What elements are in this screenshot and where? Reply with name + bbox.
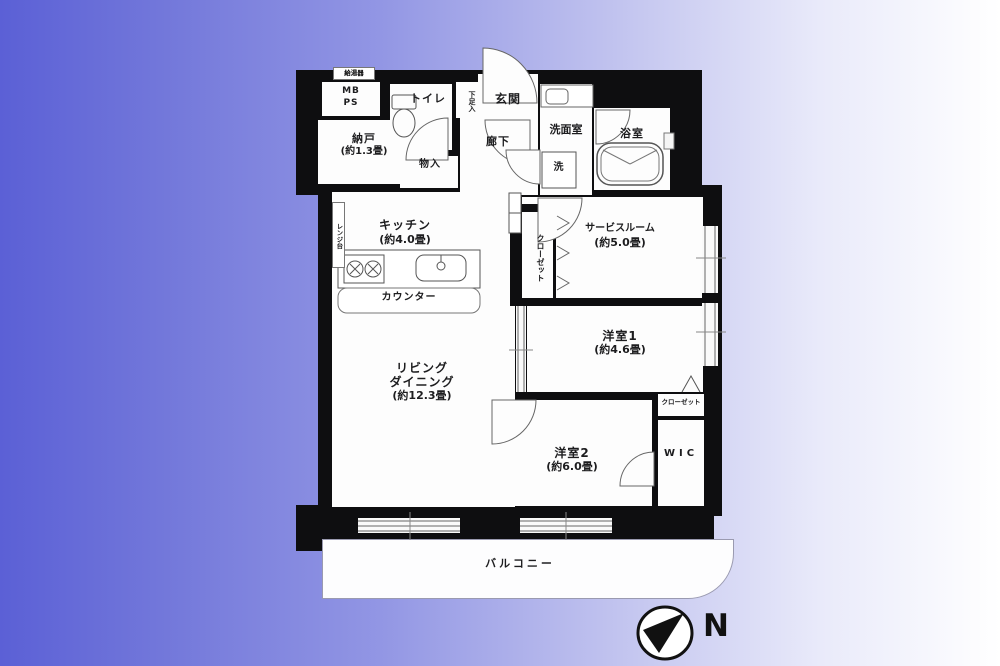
- range-stand-label: レンジ台: [335, 207, 342, 265]
- wall-closet-side: [553, 212, 556, 298]
- ps-label: PS: [322, 99, 380, 108]
- mb-label: MB: [322, 87, 380, 96]
- wic-label: WIC: [656, 449, 706, 460]
- floorplan-scene: 給湯器 MB PS 納戸 (約1.3畳) トイレ 下足入 玄関 廊下 物入 洗面…: [0, 0, 1000, 666]
- room-kitchen: [332, 192, 510, 306]
- room-wic: [658, 420, 704, 506]
- closet-w1-label: クローゼット: [658, 399, 704, 406]
- room-washroom: [540, 84, 592, 195]
- closet-service-label: クローゼット: [530, 219, 544, 297]
- western1-label: 洋室1: [560, 330, 680, 343]
- water-heater-label: 給湯器: [333, 67, 375, 80]
- living-size: (約12.3畳): [355, 390, 489, 402]
- hallway-label: 廊下: [470, 136, 526, 148]
- kitchen-size: (約4.0畳): [340, 234, 470, 246]
- living-label-2: ダイニング: [360, 376, 484, 389]
- room-bathroom: [594, 108, 670, 190]
- service-room-size: (約5.0畳): [560, 237, 680, 249]
- room-living-dining: [332, 306, 515, 507]
- washer-label: 洗: [542, 163, 576, 174]
- living-label-1: リビング: [360, 362, 484, 375]
- counter-label: カウンター: [338, 293, 480, 304]
- wall-bottom: [318, 505, 714, 539]
- service-room-label: サービスルーム: [560, 224, 680, 235]
- western2-size: (約6.0畳): [505, 461, 639, 473]
- wall-left: [318, 185, 332, 515]
- shoe-box-label: 下足入: [459, 85, 475, 117]
- monoire-label: 物入: [402, 160, 458, 171]
- balcony-label: バルコニー: [430, 558, 610, 570]
- bathroom-label: 浴室: [596, 128, 668, 140]
- wall-closet-top: [520, 204, 558, 212]
- washroom-label: 洗面室: [534, 124, 598, 136]
- compass-icon: [638, 607, 692, 659]
- room-hallway: [460, 104, 538, 195]
- range-stand-box: レンジ台: [332, 202, 345, 268]
- western1-size: (約4.6畳): [560, 344, 680, 356]
- kitchen-label: キッチン: [340, 219, 470, 232]
- western2-label: 洋室2: [510, 447, 634, 460]
- genkan-label: 玄関: [480, 93, 536, 106]
- nando-size: (約1.3畳): [318, 147, 410, 158]
- nando-label: 納戸: [318, 133, 410, 145]
- north-label: N: [703, 608, 729, 644]
- toilet-label: トイレ: [398, 93, 458, 105]
